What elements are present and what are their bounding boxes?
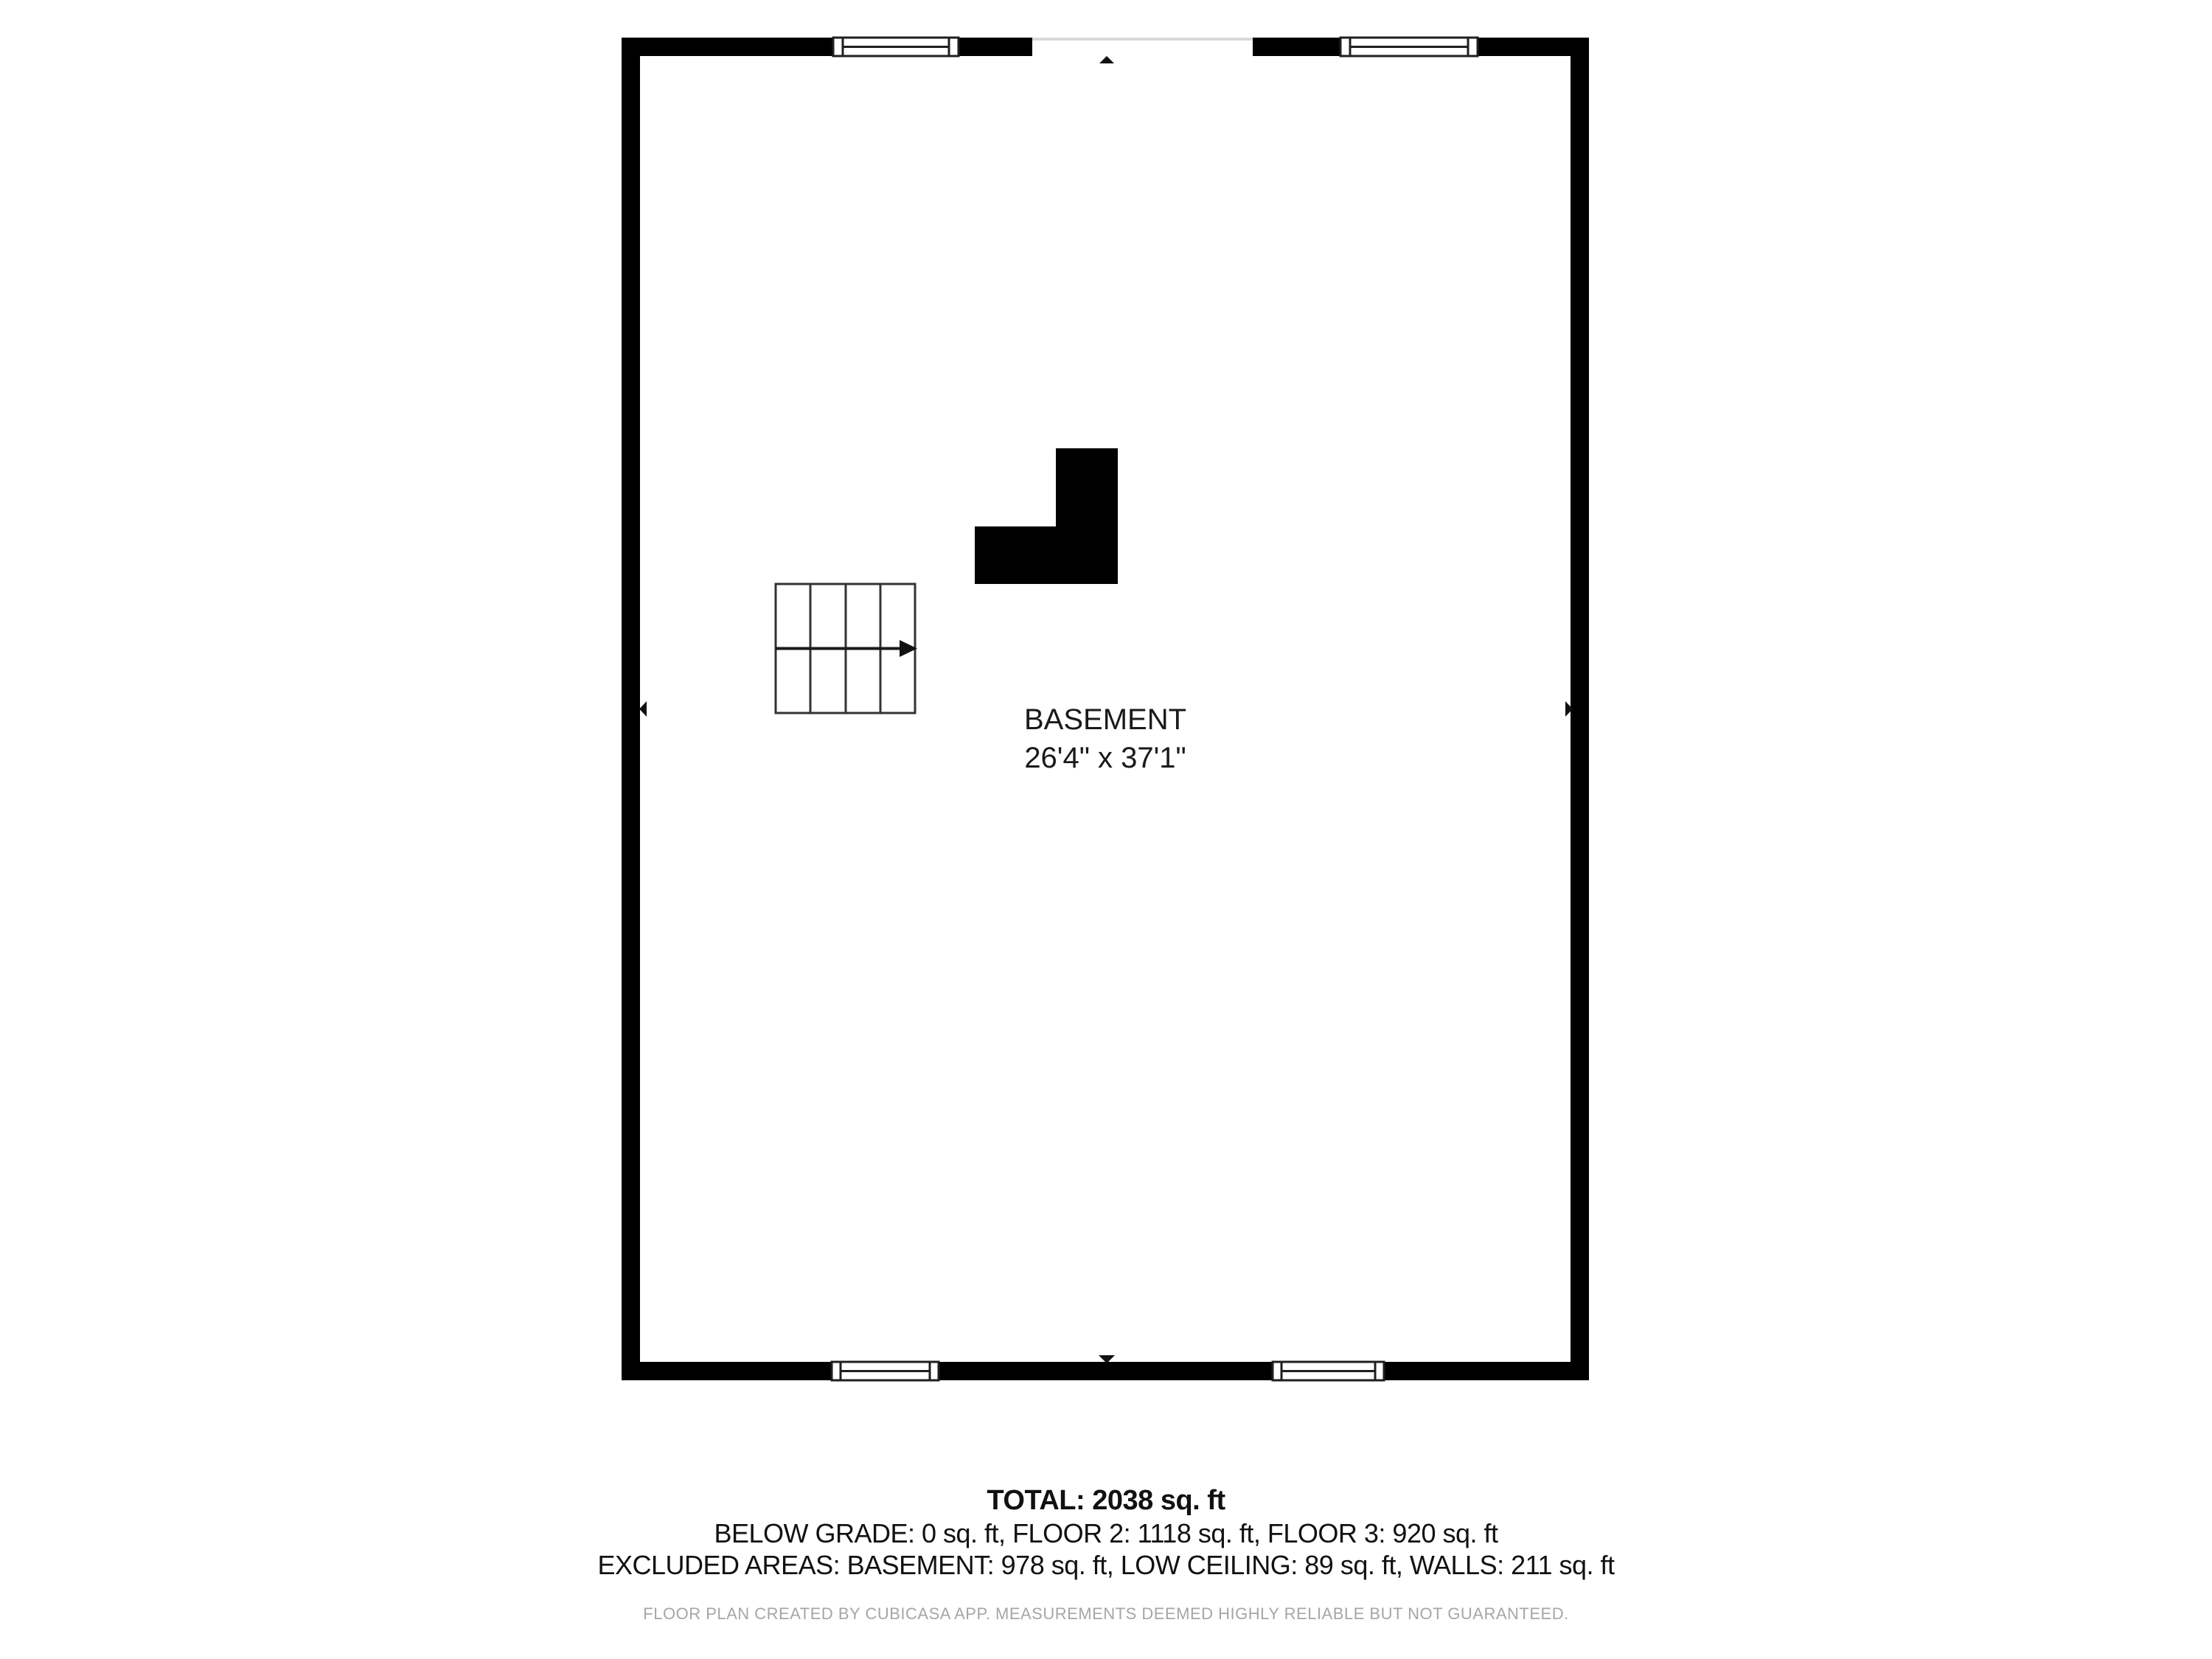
wall-right	[1571, 38, 1589, 1380]
room-dimensions: 26'4" x 37'1"	[640, 739, 1571, 777]
floor-plan-canvas	[0, 0, 2212, 1659]
wall-bottom	[622, 1362, 1589, 1380]
disclaimer-text: FLOOR PLAN CREATED BY CUBICASA APP. MEAS…	[0, 1604, 2212, 1624]
room-label-block: BASEMENT 26'4" x 37'1"	[640, 700, 1571, 777]
room-name: BASEMENT	[640, 700, 1571, 739]
chimney-block	[975, 448, 1118, 584]
marker-arrow-top-icon	[1099, 56, 1114, 63]
window-bottom-right	[1273, 1362, 1384, 1380]
window-top-left	[833, 38, 959, 56]
wall-left	[622, 38, 640, 1380]
area-summary: TOTAL: 2038 sq. ft BELOW GRADE: 0 sq. ft…	[0, 1484, 2212, 1581]
wall-opening-line	[1032, 38, 1253, 41]
floor-plan-page: BASEMENT 26'4" x 37'1" TOTAL: 2038 sq. f…	[0, 0, 2212, 1659]
staircase	[776, 584, 917, 713]
window-bottom-left	[832, 1362, 939, 1380]
total-area-line: TOTAL: 2038 sq. ft	[0, 1484, 2212, 1517]
excluded-area-line: EXCLUDED AREAS: BASEMENT: 978 sq. ft, LO…	[0, 1549, 2212, 1581]
wall-top-left-segment	[622, 38, 1032, 56]
floors-area-line: BELOW GRADE: 0 sq. ft, FLOOR 2: 1118 sq.…	[0, 1517, 2212, 1549]
window-top-right	[1340, 38, 1478, 56]
